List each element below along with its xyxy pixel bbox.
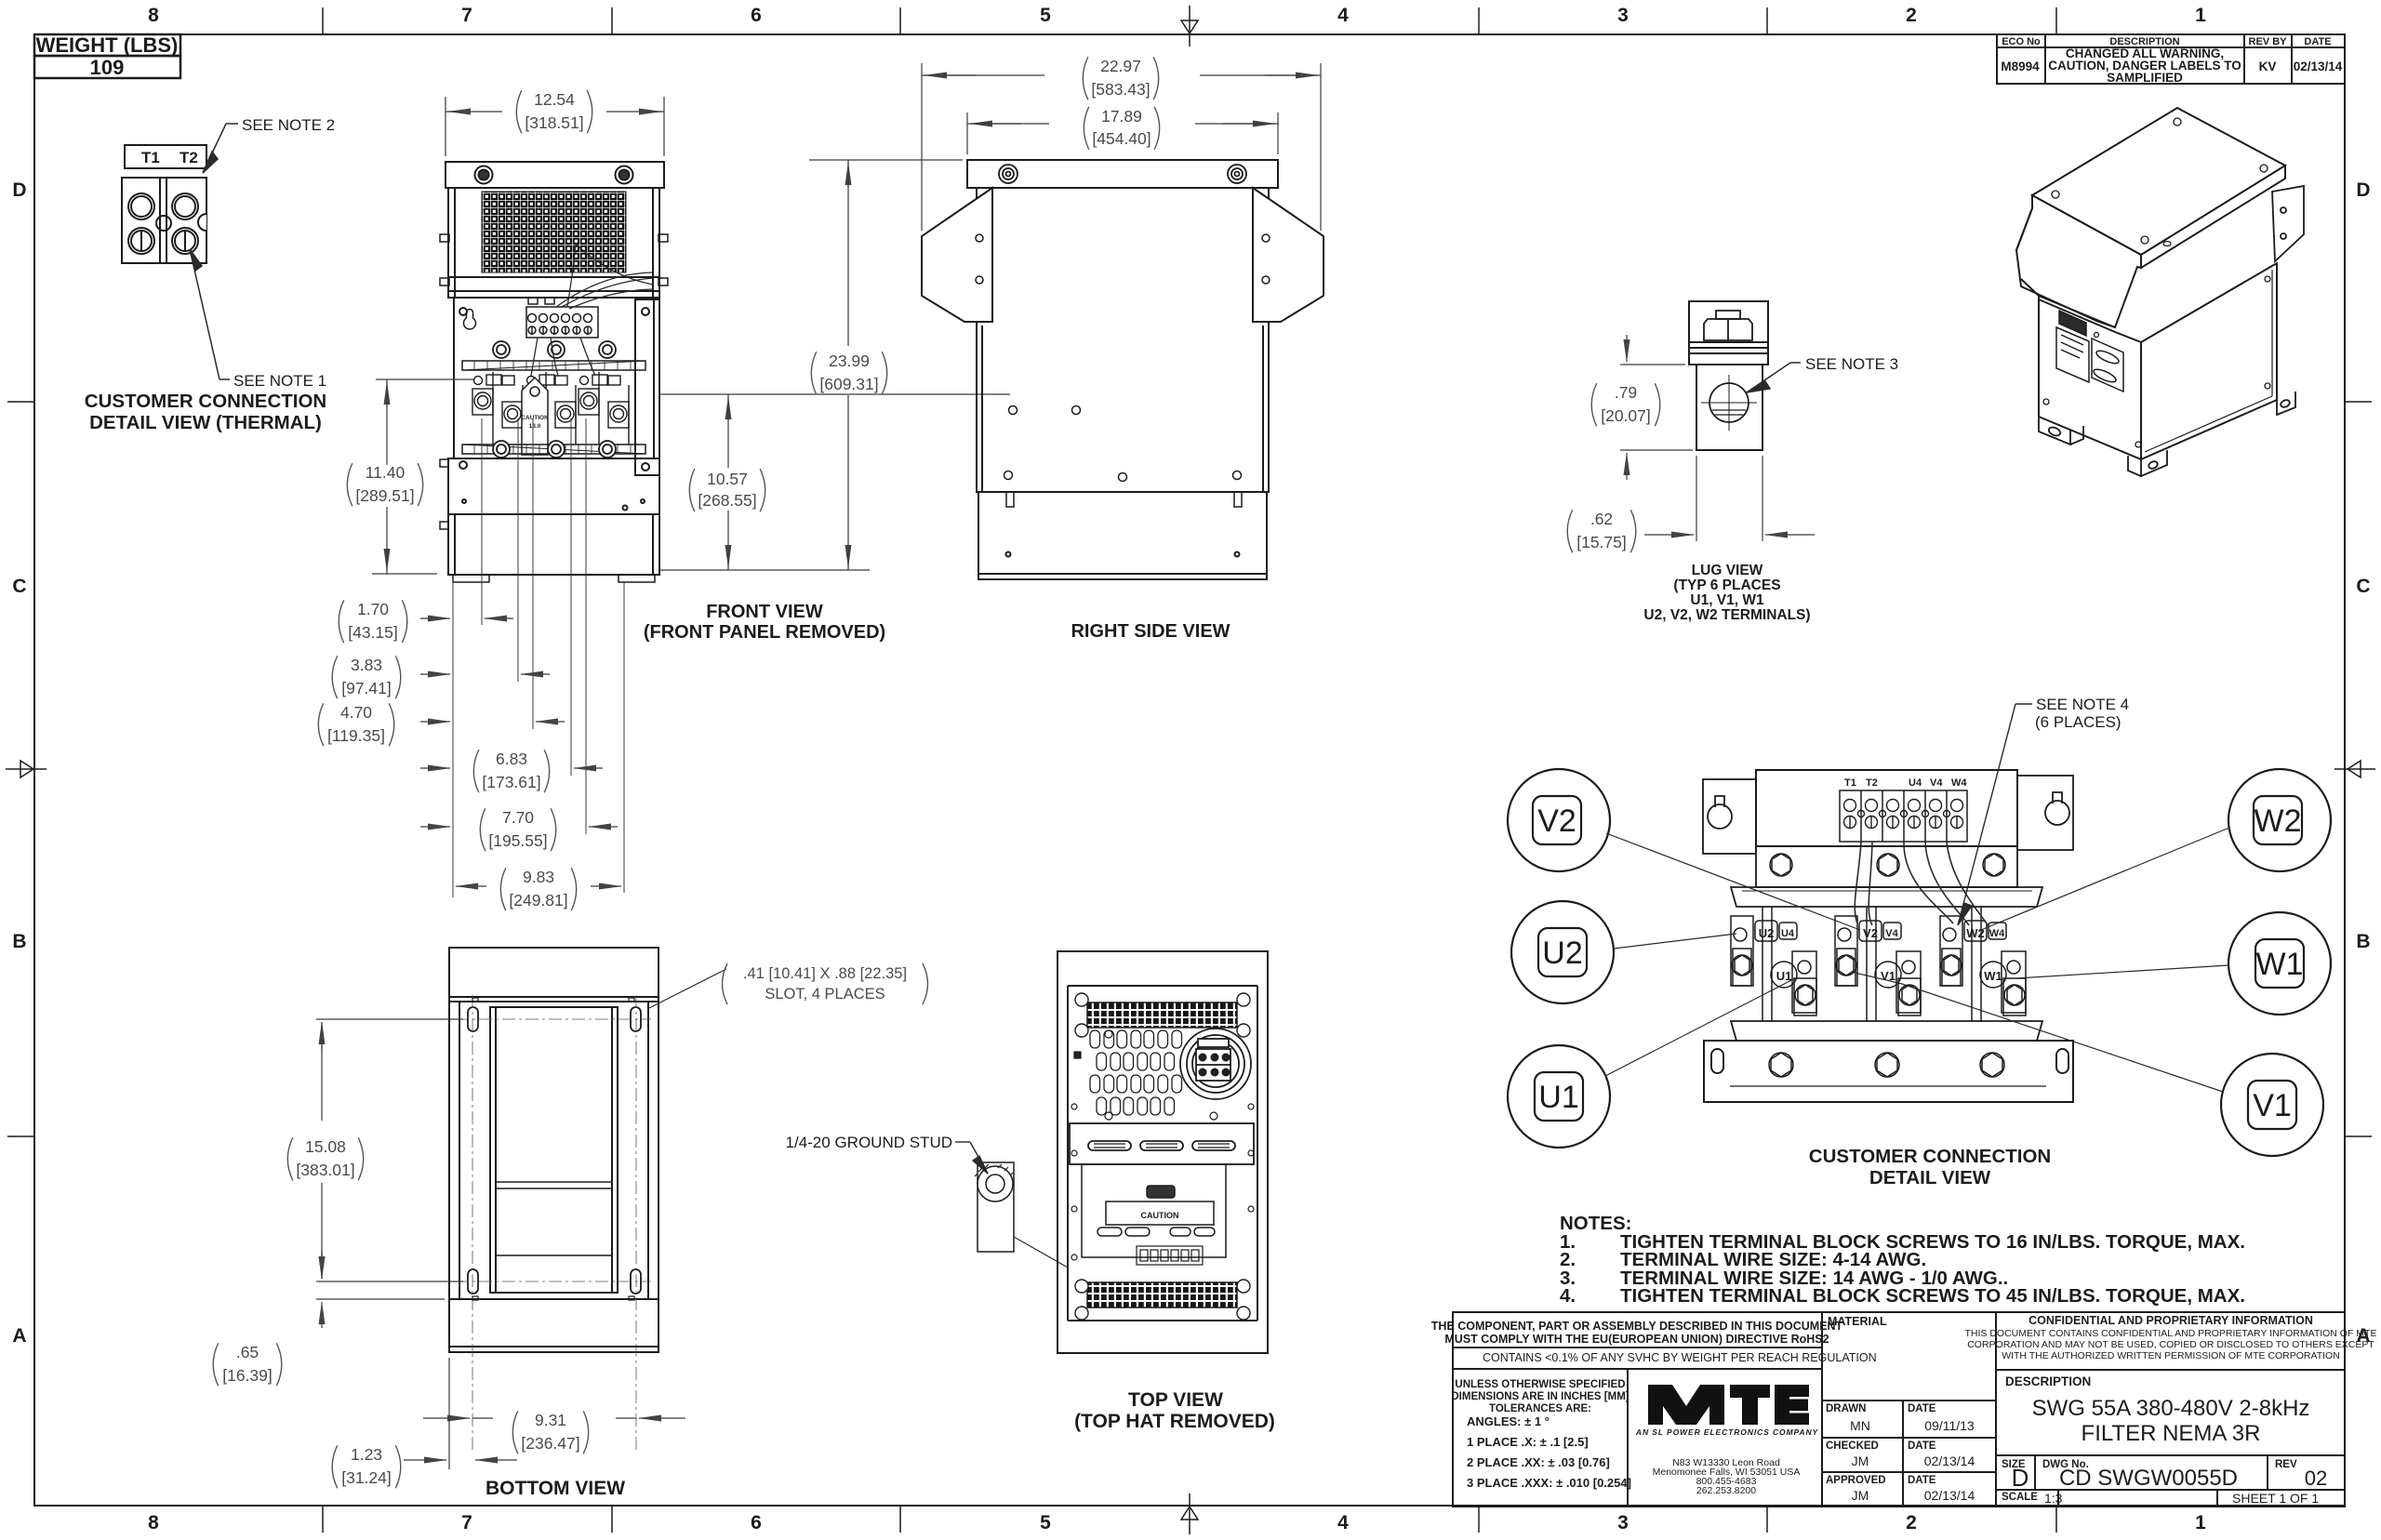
svg-text:09/11/13: 09/11/13 bbox=[1924, 1418, 1975, 1433]
svg-text:THE COMPONENT, PART OR ASSEMBL: THE COMPONENT, PART OR ASSEMBLY DESCRIBE… bbox=[1431, 1320, 1843, 1333]
svg-text:[20.07]: [20.07] bbox=[1601, 406, 1651, 425]
svg-text:9.83: 9.83 bbox=[523, 868, 554, 886]
svg-text:1/4-20 GROUND STUD: 1/4-20 GROUND STUD bbox=[786, 1134, 952, 1151]
svg-text:(TOP HAT REMOVED): (TOP HAT REMOVED) bbox=[1074, 1411, 1275, 1432]
svg-text:ANGLES: ± 1 °: ANGLES: ± 1 ° bbox=[1467, 1414, 1550, 1428]
svg-text:CUSTOMER CONNECTION: CUSTOMER CONNECTION bbox=[85, 391, 326, 412]
svg-text:W1: W1 bbox=[1984, 969, 2002, 983]
svg-text:CAUTION: CAUTION bbox=[1141, 1211, 1179, 1220]
svg-text:DATE: DATE bbox=[1908, 1440, 1936, 1452]
svg-text:[318.51]: [318.51] bbox=[525, 113, 583, 132]
svg-text:DATE: DATE bbox=[1908, 1475, 1936, 1486]
svg-text:1.70: 1.70 bbox=[357, 600, 389, 618]
svg-text:[583.43]: [583.43] bbox=[1091, 80, 1150, 99]
svg-text:W1: W1 bbox=[2256, 947, 2304, 982]
svg-text:TOLERANCES ARE:: TOLERANCES ARE: bbox=[1489, 1403, 1591, 1414]
svg-text:[173.61]: [173.61] bbox=[482, 773, 540, 791]
svg-text:SWG 55A 380-480V 2-8kHz: SWG 55A 380-480V 2-8kHz bbox=[2032, 1396, 2310, 1421]
svg-text:(6 PLACES): (6 PLACES) bbox=[2035, 713, 2122, 731]
svg-text:[31.24]: [31.24] bbox=[341, 1468, 392, 1487]
svg-text:UNLESS OTHERWISE SPECIFIED: UNLESS OTHERWISE SPECIFIED bbox=[1455, 1379, 1625, 1390]
svg-text:W4: W4 bbox=[1989, 928, 2005, 939]
svg-text:DIMENSIONS ARE IN INCHES [MM]: DIMENSIONS ARE IN INCHES [MM] bbox=[1451, 1391, 1629, 1402]
svg-text:JM: JM bbox=[1852, 1454, 1869, 1468]
svg-text:DATE: DATE bbox=[2304, 36, 2331, 47]
svg-text:T2: T2 bbox=[180, 149, 198, 166]
svg-text:02/13/14: 02/13/14 bbox=[2294, 60, 2343, 73]
svg-text:8: 8 bbox=[148, 1512, 159, 1533]
svg-text:.62: .62 bbox=[1590, 510, 1613, 528]
svg-text:D: D bbox=[2012, 1464, 2029, 1492]
svg-text:5: 5 bbox=[1040, 1512, 1051, 1533]
svg-text:LUG VIEW: LUG VIEW bbox=[1692, 563, 1763, 578]
svg-text:[249.81]: [249.81] bbox=[509, 891, 567, 909]
svg-text:B: B bbox=[12, 931, 26, 952]
svg-text:6: 6 bbox=[751, 1512, 762, 1533]
svg-text:CAUTION: CAUTION bbox=[521, 415, 549, 421]
svg-text:[43.15]: [43.15] bbox=[348, 623, 398, 642]
svg-text:02: 02 bbox=[2305, 1467, 2327, 1490]
svg-text:MN: MN bbox=[1850, 1418, 1870, 1433]
svg-text:109: 109 bbox=[90, 56, 125, 79]
svg-text:D: D bbox=[12, 179, 26, 201]
svg-text:9.31: 9.31 bbox=[535, 1411, 566, 1429]
svg-text:11.40: 11.40 bbox=[366, 463, 406, 482]
svg-text:[383.01]: [383.01] bbox=[296, 1161, 354, 1179]
svg-text:17.89: 17.89 bbox=[1101, 107, 1142, 126]
svg-text:SEE NOTE 4: SEE NOTE 4 bbox=[2036, 696, 2129, 713]
svg-text:TIGHTEN TERMINAL BLOCK SCREWS: TIGHTEN TERMINAL BLOCK SCREWS TO 45 IN/L… bbox=[1620, 1285, 2245, 1307]
svg-text:.79: .79 bbox=[1615, 383, 1637, 402]
svg-text:V1: V1 bbox=[2253, 1088, 2292, 1123]
svg-text:V4: V4 bbox=[1885, 928, 1898, 939]
svg-text:CD SWGW0055D: CD SWGW0055D bbox=[2059, 1466, 2238, 1491]
svg-text:WITH THE AUTHORIZED WRITTEN PE: WITH THE AUTHORIZED WRITTEN PERMISSION O… bbox=[2002, 1350, 2340, 1361]
svg-text:U4: U4 bbox=[1781, 928, 1795, 939]
svg-text:13.0: 13.0 bbox=[529, 423, 541, 430]
svg-text:A: A bbox=[12, 1325, 26, 1347]
svg-text:12.54: 12.54 bbox=[534, 90, 575, 109]
svg-text:[15.75]: [15.75] bbox=[1576, 533, 1627, 551]
svg-text:[454.40]: [454.40] bbox=[1092, 129, 1151, 148]
svg-text:W2: W2 bbox=[1966, 926, 1985, 940]
svg-text:D: D bbox=[2356, 179, 2370, 201]
svg-text:4: 4 bbox=[1337, 1512, 1349, 1533]
svg-text:TOP VIEW: TOP VIEW bbox=[1128, 1389, 1223, 1411]
svg-text:[16.39]: [16.39] bbox=[222, 1366, 273, 1385]
svg-text:U2: U2 bbox=[1759, 926, 1775, 940]
svg-text:2 PLACE .XX: ± .03 [0.76]: 2 PLACE .XX: ± .03 [0.76] bbox=[1467, 1455, 1610, 1469]
svg-text:5: 5 bbox=[1040, 5, 1051, 26]
svg-text:2: 2 bbox=[1906, 1512, 1917, 1533]
svg-text:[609.31]: [609.31] bbox=[819, 375, 878, 393]
svg-text:[119.35]: [119.35] bbox=[327, 726, 385, 745]
svg-text:1:3: 1:3 bbox=[2044, 1491, 2063, 1506]
svg-text:T1: T1 bbox=[1844, 777, 1856, 789]
svg-text:[236.47]: [236.47] bbox=[521, 1434, 579, 1453]
svg-text:22.97: 22.97 bbox=[1100, 57, 1141, 75]
svg-text:U2, V2, W2 TERMINALS): U2, V2, W2 TERMINALS) bbox=[1643, 607, 1810, 623]
svg-text:.41 [10.41] X .88 [22.35]: .41 [10.41] X .88 [22.35] bbox=[743, 965, 907, 982]
svg-text:23.99: 23.99 bbox=[829, 352, 870, 370]
svg-text:AN SL POWER ELECTRONICS COMPAN: AN SL POWER ELECTRONICS COMPANY bbox=[1635, 1427, 1819, 1437]
svg-text:SEE NOTE 3: SEE NOTE 3 bbox=[1805, 355, 1898, 373]
svg-text:JM: JM bbox=[1852, 1488, 1869, 1503]
svg-text:.65: .65 bbox=[236, 1343, 259, 1361]
svg-text:V4: V4 bbox=[1930, 777, 1943, 789]
svg-text:CUSTOMER CONNECTION: CUSTOMER CONNECTION bbox=[1809, 1146, 2051, 1167]
svg-text:6: 6 bbox=[751, 5, 762, 26]
svg-text:02/13/14: 02/13/14 bbox=[1924, 1454, 1975, 1468]
svg-text:BOTTOM VIEW: BOTTOM VIEW bbox=[486, 1478, 625, 1499]
svg-text:1: 1 bbox=[2195, 5, 2206, 26]
svg-text:7: 7 bbox=[461, 5, 472, 26]
svg-text:02/13/14: 02/13/14 bbox=[1924, 1488, 1975, 1503]
svg-text:C: C bbox=[2356, 576, 2370, 597]
svg-text:4: 4 bbox=[1337, 5, 1349, 26]
svg-text:T1: T1 bbox=[141, 149, 160, 166]
svg-text:U4: U4 bbox=[1909, 777, 1922, 789]
svg-text:3.83: 3.83 bbox=[351, 656, 382, 674]
svg-text:1 PLACE .X: ± .1 [2.5]: 1 PLACE .X: ± .1 [2.5] bbox=[1467, 1435, 1589, 1449]
svg-text:W4: W4 bbox=[1951, 777, 1967, 789]
svg-text:U1: U1 bbox=[1538, 1080, 1578, 1115]
svg-text:1: 1 bbox=[2195, 1512, 2206, 1533]
svg-text:6.83: 6.83 bbox=[496, 750, 527, 768]
svg-text:SEE NOTE 2: SEE NOTE 2 bbox=[242, 116, 335, 134]
svg-text:[195.55]: [195.55] bbox=[488, 831, 547, 850]
svg-text:C: C bbox=[12, 576, 26, 597]
svg-text:15.08: 15.08 bbox=[305, 1137, 346, 1156]
svg-text:[268.55]: [268.55] bbox=[698, 491, 756, 510]
svg-text:U2: U2 bbox=[1542, 936, 1582, 971]
svg-text:FRONT VIEW: FRONT VIEW bbox=[706, 602, 823, 622]
svg-text:SEE NOTE 1: SEE NOTE 1 bbox=[233, 372, 326, 390]
svg-text:U1, V1, W1: U1, V1, W1 bbox=[1690, 592, 1764, 608]
svg-text:SAMPLIFIED: SAMPLIFIED bbox=[2107, 71, 2183, 85]
svg-text:4.70: 4.70 bbox=[340, 703, 372, 722]
svg-text:SLOT, 4 PLACES: SLOT, 4 PLACES bbox=[765, 986, 885, 1002]
svg-text:4.: 4. bbox=[1560, 1285, 1576, 1307]
svg-text:THIS DOCUMENT CONTAINS CONFIDE: THIS DOCUMENT CONTAINS CONFIDENTIAL AND … bbox=[1965, 1328, 2377, 1339]
svg-text:(TYP 6 PLACES: (TYP 6 PLACES bbox=[1673, 577, 1780, 593]
svg-text:M8994: M8994 bbox=[2001, 60, 2040, 73]
svg-text:1.23: 1.23 bbox=[351, 1445, 382, 1464]
svg-text:REV BY: REV BY bbox=[2249, 36, 2288, 47]
svg-text:262.253.8200: 262.253.8200 bbox=[1696, 1485, 1756, 1496]
svg-text:DRAWN: DRAWN bbox=[1826, 1403, 1866, 1414]
svg-text:W2: W2 bbox=[2255, 803, 2302, 839]
svg-text:KV: KV bbox=[2259, 60, 2277, 73]
svg-text:REV: REV bbox=[2275, 1459, 2297, 1470]
svg-text:SCALE: SCALE bbox=[2002, 1492, 2038, 1503]
svg-text:CORPORATION AND MAY NOT BE USE: CORPORATION AND MAY NOT BE USED, COPIED … bbox=[1967, 1339, 2374, 1350]
svg-text:3: 3 bbox=[1617, 5, 1629, 26]
svg-text:FILTER NEMA 3R: FILTER NEMA 3R bbox=[2082, 1421, 2261, 1446]
svg-text:3 PLACE .XXX: ± .010 [0.254]: 3 PLACE .XXX: ± .010 [0.254] bbox=[1467, 1476, 1631, 1490]
svg-text:V2: V2 bbox=[1863, 926, 1878, 940]
svg-text:APPROVED: APPROVED bbox=[1826, 1475, 1886, 1486]
svg-text:(FRONT PANEL REMOVED): (FRONT PANEL REMOVED) bbox=[644, 622, 885, 643]
svg-text:T2: T2 bbox=[1866, 777, 1878, 789]
svg-text:SHEET 1 OF 1: SHEET 1 OF 1 bbox=[2232, 1491, 2319, 1506]
svg-text:B: B bbox=[2356, 931, 2370, 952]
svg-text:RIGHT SIDE VIEW: RIGHT SIDE VIEW bbox=[1071, 621, 1230, 642]
svg-text:DATE: DATE bbox=[1908, 1403, 1936, 1414]
svg-text:[289.51]: [289.51] bbox=[355, 486, 414, 505]
svg-text:DESCRIPTION: DESCRIPTION bbox=[2005, 1374, 2091, 1388]
svg-text:MUST COMPLY WITH THE EU(EUROPE: MUST COMPLY WITH THE EU(EUROPEAN UNION) … bbox=[1444, 1333, 1829, 1346]
svg-text:WEIGHT (LBS): WEIGHT (LBS) bbox=[36, 33, 179, 57]
svg-text:2: 2 bbox=[1906, 5, 1917, 26]
svg-text:CHECKED: CHECKED bbox=[1826, 1440, 1879, 1452]
svg-text:3: 3 bbox=[1617, 1512, 1629, 1533]
svg-text:7.70: 7.70 bbox=[502, 808, 534, 827]
svg-text:[97.41]: [97.41] bbox=[341, 679, 392, 697]
svg-text:7: 7 bbox=[461, 1512, 472, 1533]
svg-text:V2: V2 bbox=[1537, 803, 1576, 839]
svg-text:10.57: 10.57 bbox=[707, 470, 748, 488]
svg-text:CONTAINS <0.1% OF ANY SVHC BY: CONTAINS <0.1% OF ANY SVHC BY WEIGHT PER… bbox=[1483, 1351, 1877, 1364]
svg-text:ECO No: ECO No bbox=[2002, 36, 2041, 47]
svg-text:DETAIL VIEW (THERMAL): DETAIL VIEW (THERMAL) bbox=[89, 412, 322, 433]
svg-text:MATERIAL: MATERIAL bbox=[1828, 1315, 1887, 1328]
svg-text:8: 8 bbox=[148, 5, 159, 26]
svg-text:DETAIL VIEW: DETAIL VIEW bbox=[1869, 1167, 1991, 1188]
svg-text:CONFIDENTIAL AND PROPRIETARY I: CONFIDENTIAL AND PROPRIETARY INFORMATION bbox=[2029, 1314, 2313, 1327]
